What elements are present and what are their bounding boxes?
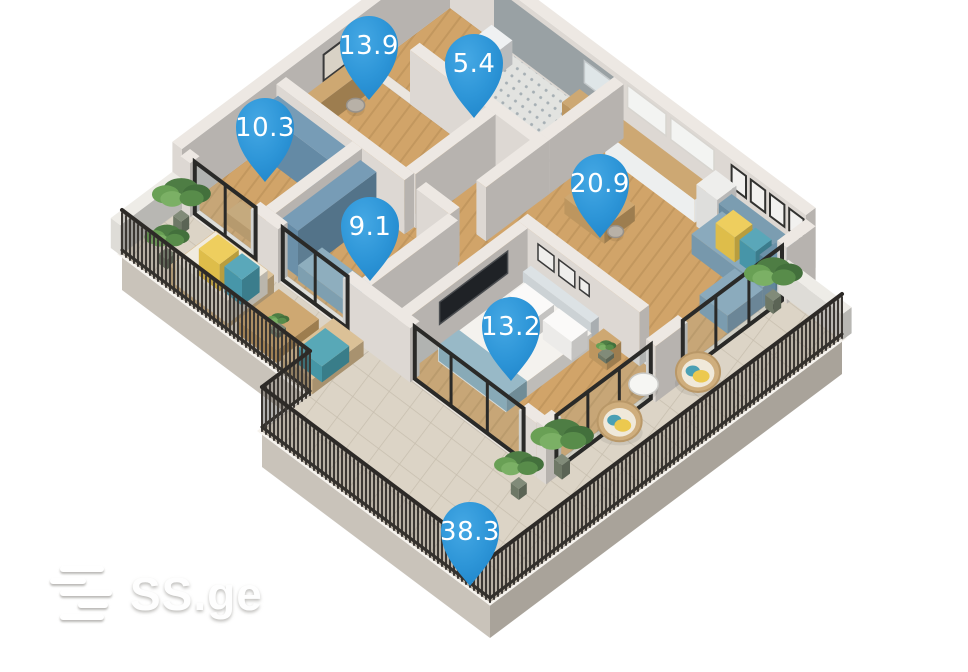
pin-label: 9.1	[349, 212, 392, 242]
pin-label: 20.9	[570, 169, 630, 199]
pin-label: 13.2	[481, 312, 541, 342]
listing-floorplan-image: 13.95.410.320.99.113.238.3 SS.ge	[0, 0, 968, 672]
ss-ge-logo-icon	[48, 566, 114, 622]
pin-label: 10.3	[235, 113, 295, 143]
pin-label: 5.4	[453, 49, 496, 79]
ss-ge-logo-text: SS.ge	[130, 567, 263, 621]
pin-label: 38.3	[440, 517, 500, 547]
ss-ge-watermark: SS.ge	[48, 566, 263, 622]
pin-label: 13.9	[339, 31, 399, 61]
